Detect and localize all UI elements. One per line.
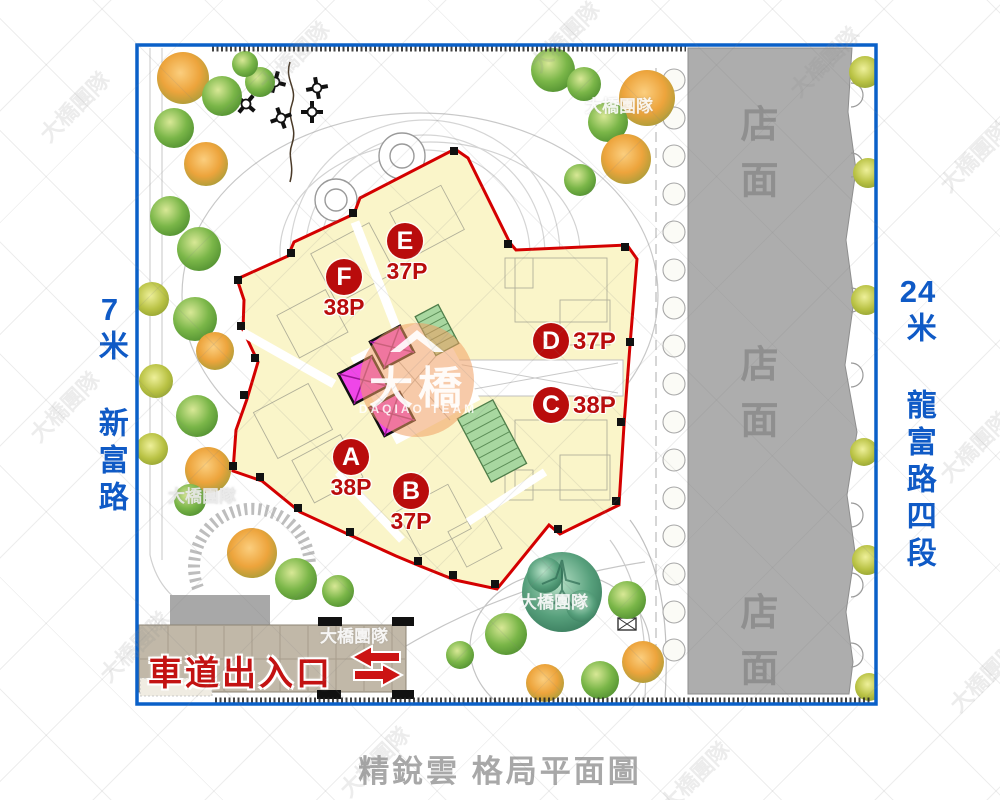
shop-label-2: 店面 — [737, 344, 783, 456]
road-left-name: 米 新富路 — [94, 330, 126, 518]
shop-label-3: 店面 — [737, 592, 783, 704]
unit-area-d: 37P — [573, 328, 631, 356]
unit-badge-d: D — [533, 323, 569, 359]
road-label-right: 24 米 龍富路四段 — [892, 276, 944, 578]
unit-badge-c: C — [533, 387, 569, 423]
unit-area-f: 38P — [312, 294, 376, 321]
site-plan-page: 7 米 新富路 24 米 龍富路四段 店面 店面 店面 A 38P B 37P … — [0, 0, 1000, 800]
unit-badge-a: A — [333, 439, 369, 475]
road-label-left: 7 米 新富路 — [86, 294, 134, 522]
unit-badge-e: E — [387, 223, 423, 259]
driveway-label: 車道出入口 — [148, 646, 333, 695]
road-right-name: 米 龍富路四段 — [902, 312, 934, 574]
unit-area-a: 38P — [319, 474, 383, 501]
brand-watermark-subtext: DAQIAO TEAM — [356, 402, 480, 416]
page-title: 精銳雲 格局平面圖 — [358, 746, 642, 791]
teal-tree — [522, 552, 602, 632]
unit-area-c: 38P — [573, 392, 631, 420]
shop-label-1: 店面 — [737, 104, 783, 216]
road-left-width: 7 — [86, 294, 134, 327]
road-right-width: 24 — [892, 276, 944, 309]
unit-badge-b: B — [393, 473, 429, 509]
unit-badge-f: F — [326, 259, 362, 295]
shrub-row — [663, 69, 685, 661]
unit-area-e: 37P — [375, 258, 439, 285]
picnic-tables — [231, 69, 330, 133]
unit-area-b: 37P — [379, 508, 443, 535]
